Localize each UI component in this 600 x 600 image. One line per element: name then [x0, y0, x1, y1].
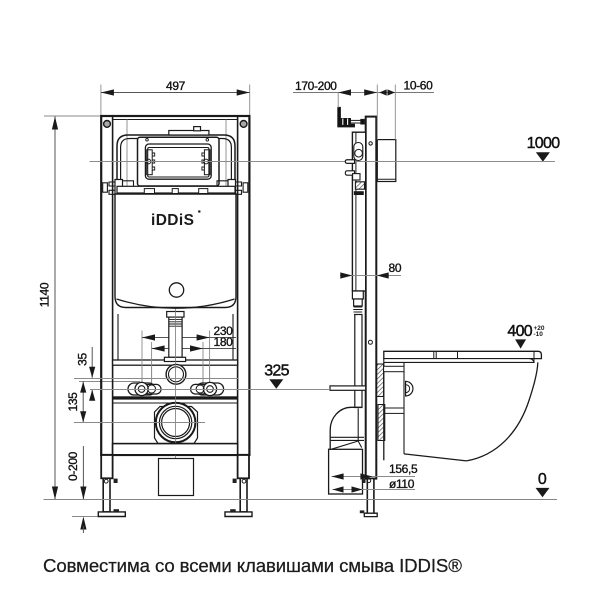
svg-text:170-200: 170-200	[295, 79, 337, 93]
svg-text:0: 0	[538, 471, 547, 488]
svg-text:400: 400	[507, 323, 532, 340]
svg-text:180: 180	[214, 335, 234, 349]
svg-text:ø110: ø110	[389, 477, 415, 491]
svg-text:135: 135	[66, 392, 80, 412]
svg-text:1140: 1140	[38, 282, 52, 307]
svg-text:35: 35	[76, 353, 90, 366]
svg-text:1000: 1000	[527, 135, 561, 152]
svg-text:325: 325	[264, 363, 289, 380]
svg-text:-10: -10	[534, 331, 544, 338]
svg-text:0-200: 0-200	[66, 451, 80, 481]
svg-text:497: 497	[166, 79, 186, 93]
svg-text:80: 80	[389, 261, 402, 275]
svg-text:Совместима со всеми клавишами: Совместима со всеми клавишами смыва IDDI…	[43, 555, 462, 576]
svg-text:iDDiS: iDDiS	[151, 212, 194, 229]
svg-text:10-60: 10-60	[404, 79, 434, 93]
svg-text:156,5: 156,5	[389, 462, 418, 476]
